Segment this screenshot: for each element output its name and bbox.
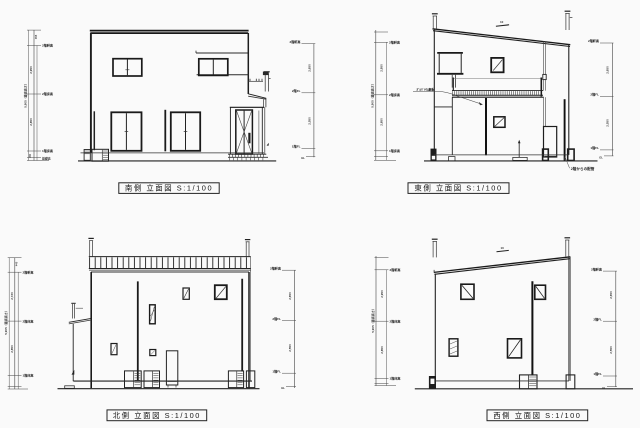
svg-text:GL: GL (599, 156, 603, 160)
svg-text:2階FL: 2階FL (292, 88, 301, 93)
svg-text:450: 450 (29, 153, 32, 158)
svg-text:1階FL: 1階FL (272, 368, 281, 373)
svg-text:440: 440 (15, 261, 19, 266)
svg-text:1階床高: 1階床高 (42, 148, 53, 153)
svg-text:2階軒高: 2階軒高 (390, 267, 401, 272)
svg-text:2階床高: 2階床高 (23, 318, 34, 323)
svg-text:1階床高: 1階床高 (389, 148, 400, 153)
svg-text:2階FL: 2階FL (590, 92, 599, 97)
svg-text:2階FL: 2階FL (593, 316, 602, 321)
svg-text:10: 10 (501, 246, 505, 250)
svg-text:2階軒高: 2階軒高 (42, 43, 53, 48)
svg-text:1階床高: 1階床高 (390, 376, 401, 381)
svg-text:2,550: 2,550 (606, 119, 610, 127)
svg-text:5,905（最高高さ）: 5,905（最高高さ） (3, 309, 8, 335)
svg-text:2階床高: 2階床高 (42, 91, 53, 96)
svg-text:2階軒高: 2階軒高 (389, 40, 400, 45)
svg-text:2,650: 2,650 (307, 64, 311, 72)
svg-text:基礎高: 基礎高 (41, 155, 51, 160)
svg-text:2,850: 2,850 (380, 346, 384, 354)
svg-text:2,950: 2,950 (29, 66, 33, 74)
svg-text:2,950: 2,950 (380, 64, 384, 72)
svg-text:1階床高: 1階床高 (23, 373, 34, 378)
svg-text:2,550: 2,550 (307, 117, 311, 125)
svg-text:5,905（最高高さ）: 5,905（最高高さ） (23, 82, 28, 108)
svg-text:2,850: 2,850 (10, 345, 14, 353)
svg-text:2階床高: 2階床高 (389, 92, 400, 97)
svg-text:GL: GL (301, 156, 305, 160)
svg-text:2階床高: 2階床高 (390, 318, 401, 323)
svg-text:1階FL: 1階FL (590, 145, 599, 150)
svg-text:2,550: 2,550 (609, 346, 613, 354)
svg-text:1階FL: 1階FL (292, 144, 301, 149)
svg-text:2階軒高: 2階軒高 (588, 38, 599, 43)
svg-text:5,905（最高高さ）: 5,905（最高高さ） (370, 307, 375, 333)
svg-text:北側 立面図 S:1/100: 北側 立面図 S:1/100 (113, 411, 201, 420)
svg-text:西側 立面図 S:1/100: 西側 立面図 S:1/100 (493, 411, 581, 420)
svg-text:東側 立面図 S:1/100: 東側 立面図 S:1/100 (414, 184, 502, 193)
svg-text:南側 立面図 S:1/100: 南側 立面図 S:1/100 (125, 184, 213, 193)
svg-text:5,905（最高高さ）: 5,905（最高高さ） (370, 82, 375, 108)
svg-text:10: 10 (500, 20, 504, 24)
svg-text:2,850: 2,850 (380, 118, 384, 126)
svg-text:2,730: 2,730 (10, 292, 14, 300)
svg-text:2階軒高: 2階軒高 (270, 265, 281, 270)
svg-text:2階軒高: 2階軒高 (23, 269, 34, 274)
svg-text:1階FL: 1階FL (593, 371, 602, 376)
svg-text:2階軒高: 2階軒高 (289, 39, 300, 44)
svg-text:2,550: 2,550 (288, 344, 292, 352)
svg-text:355: 355 (34, 34, 38, 39)
svg-text:2,850: 2,850 (29, 118, 33, 126)
svg-text:2,650: 2,650 (606, 66, 610, 74)
svg-text:ｶﾞﾙﾊﾞﾘｳﾑ鋼板: ｶﾞﾙﾊﾞﾘｳﾑ鋼板 (416, 87, 436, 92)
svg-text:2,650: 2,650 (288, 292, 292, 300)
svg-text:GL: GL (602, 386, 606, 390)
svg-text:2,950: 2,950 (380, 290, 384, 298)
svg-text:2階FL: 2階FL (272, 316, 281, 321)
svg-text:GL: GL (281, 386, 285, 390)
svg-text:2,650: 2,650 (609, 291, 613, 299)
svg-text:2階からの配管: 2階からの配管 (571, 166, 595, 171)
svg-text:2階軒高: 2階軒高 (591, 266, 602, 271)
